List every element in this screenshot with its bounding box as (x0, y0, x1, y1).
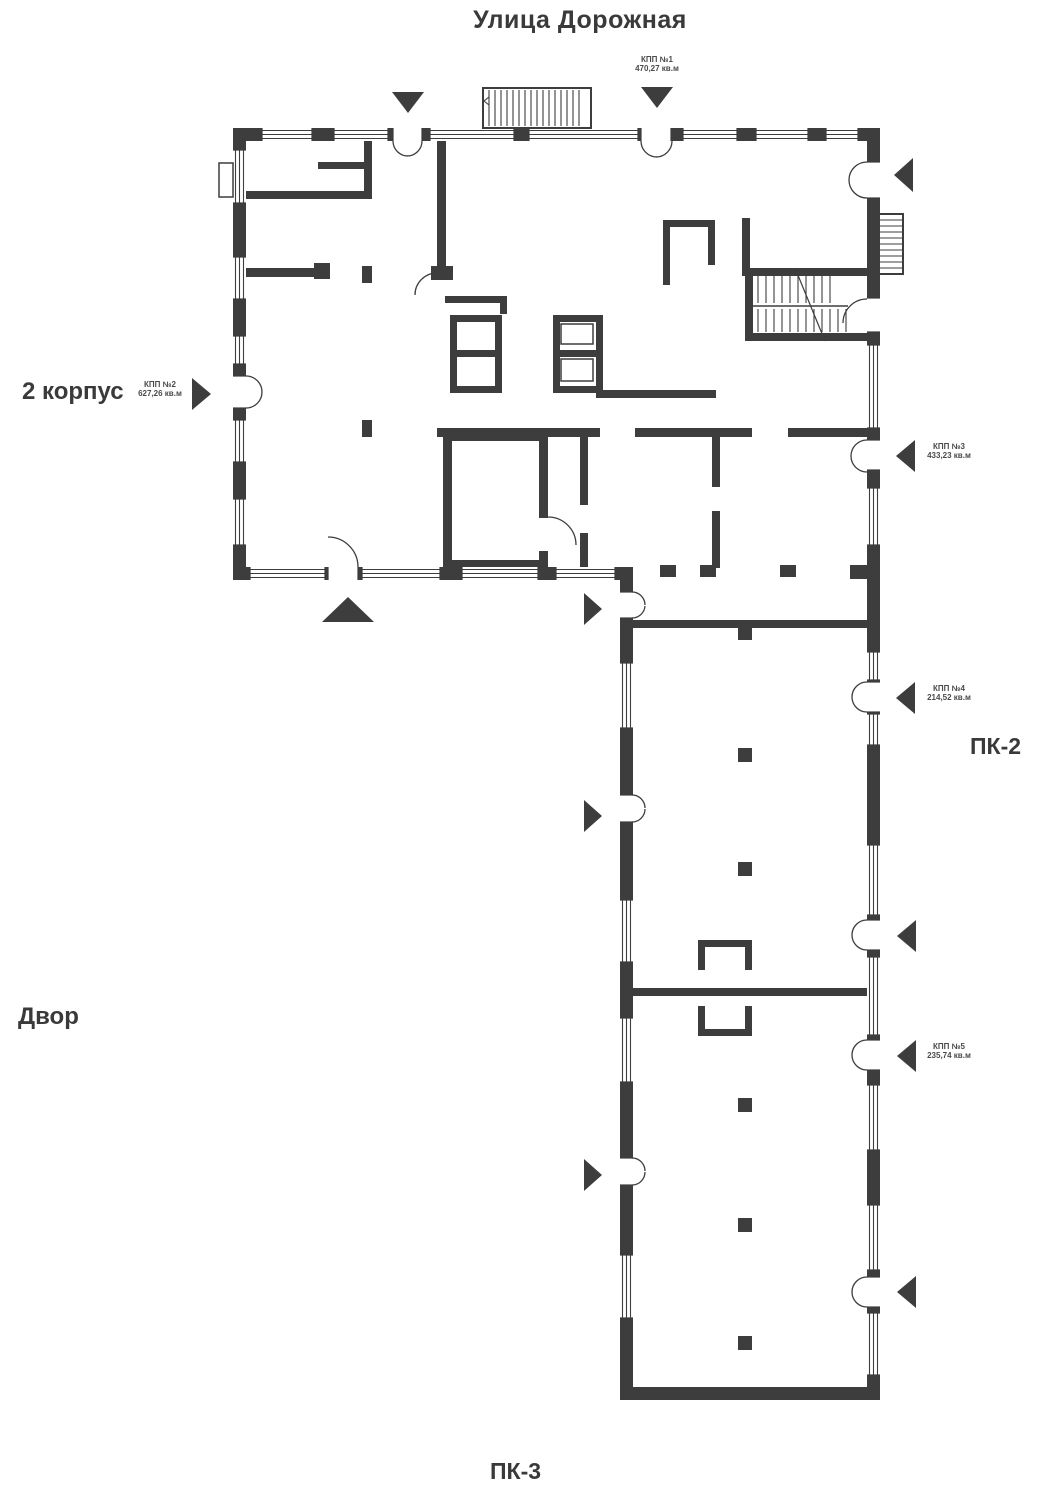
entrance-arrow-right-top (894, 158, 913, 192)
area-label-value: 214,52 кв.м (918, 693, 980, 702)
entrance-arrow-wing-1 (584, 593, 602, 625)
area-label-value: 433,23 кв.м (918, 451, 980, 460)
entrance-arrow-kpp5 (897, 1040, 916, 1072)
entrance-arrow-wing-2 (584, 800, 602, 832)
entrance-arrow-top-1 (392, 92, 424, 113)
area-label-name: КПП №2 (132, 380, 188, 389)
area-label-name: КПП №5 (918, 1042, 980, 1051)
entrance-arrow-kpp3 (896, 440, 915, 472)
entrance-arrow-right-4 (897, 1276, 916, 1308)
entrance-arrow-kpp2 (192, 378, 211, 410)
floor-plan: Улица Дорожная 2 корпус Двор ПК-2 ПК-3 К… (0, 0, 1059, 1500)
entrance-arrow-wing-3 (584, 1159, 602, 1191)
area-label-name: КПП №3 (918, 442, 980, 451)
entrance-arrow-right-3 (897, 920, 916, 952)
area-label-kpp5: КПП №5 235,74 кв.м (918, 1042, 980, 1060)
area-label-kpp4: КПП №4 214,52 кв.м (918, 684, 980, 702)
street-label: Улица Дорожная (450, 6, 710, 35)
area-label-value: 235,74 кв.м (918, 1051, 980, 1060)
area-label-value: 470,27 кв.м (612, 64, 702, 73)
area-label-kpp2: КПП №2 627,26 кв.м (132, 380, 188, 398)
area-label-kpp3: КПП №3 433,23 кв.м (918, 442, 980, 460)
entrance-arrow-kpp1 (641, 87, 673, 108)
floor-plan-drawing (0, 0, 1059, 1500)
yard-label: Двор (18, 1003, 79, 1031)
area-label-value: 627,26 кв.м (132, 389, 188, 398)
entrance-arrow-kpp4 (896, 682, 915, 714)
building-2-label: 2 корпус (22, 378, 124, 406)
pk3-label: ПК-3 (490, 1458, 541, 1485)
area-label-name: КПП №1 (612, 55, 702, 64)
area-label-name: КПП №4 (918, 684, 980, 693)
area-label-kpp1: КПП №1 470,27 кв.м (612, 55, 702, 73)
pk2-label: ПК-2 (970, 733, 1021, 760)
entrance-arrow-bottom (322, 597, 374, 622)
